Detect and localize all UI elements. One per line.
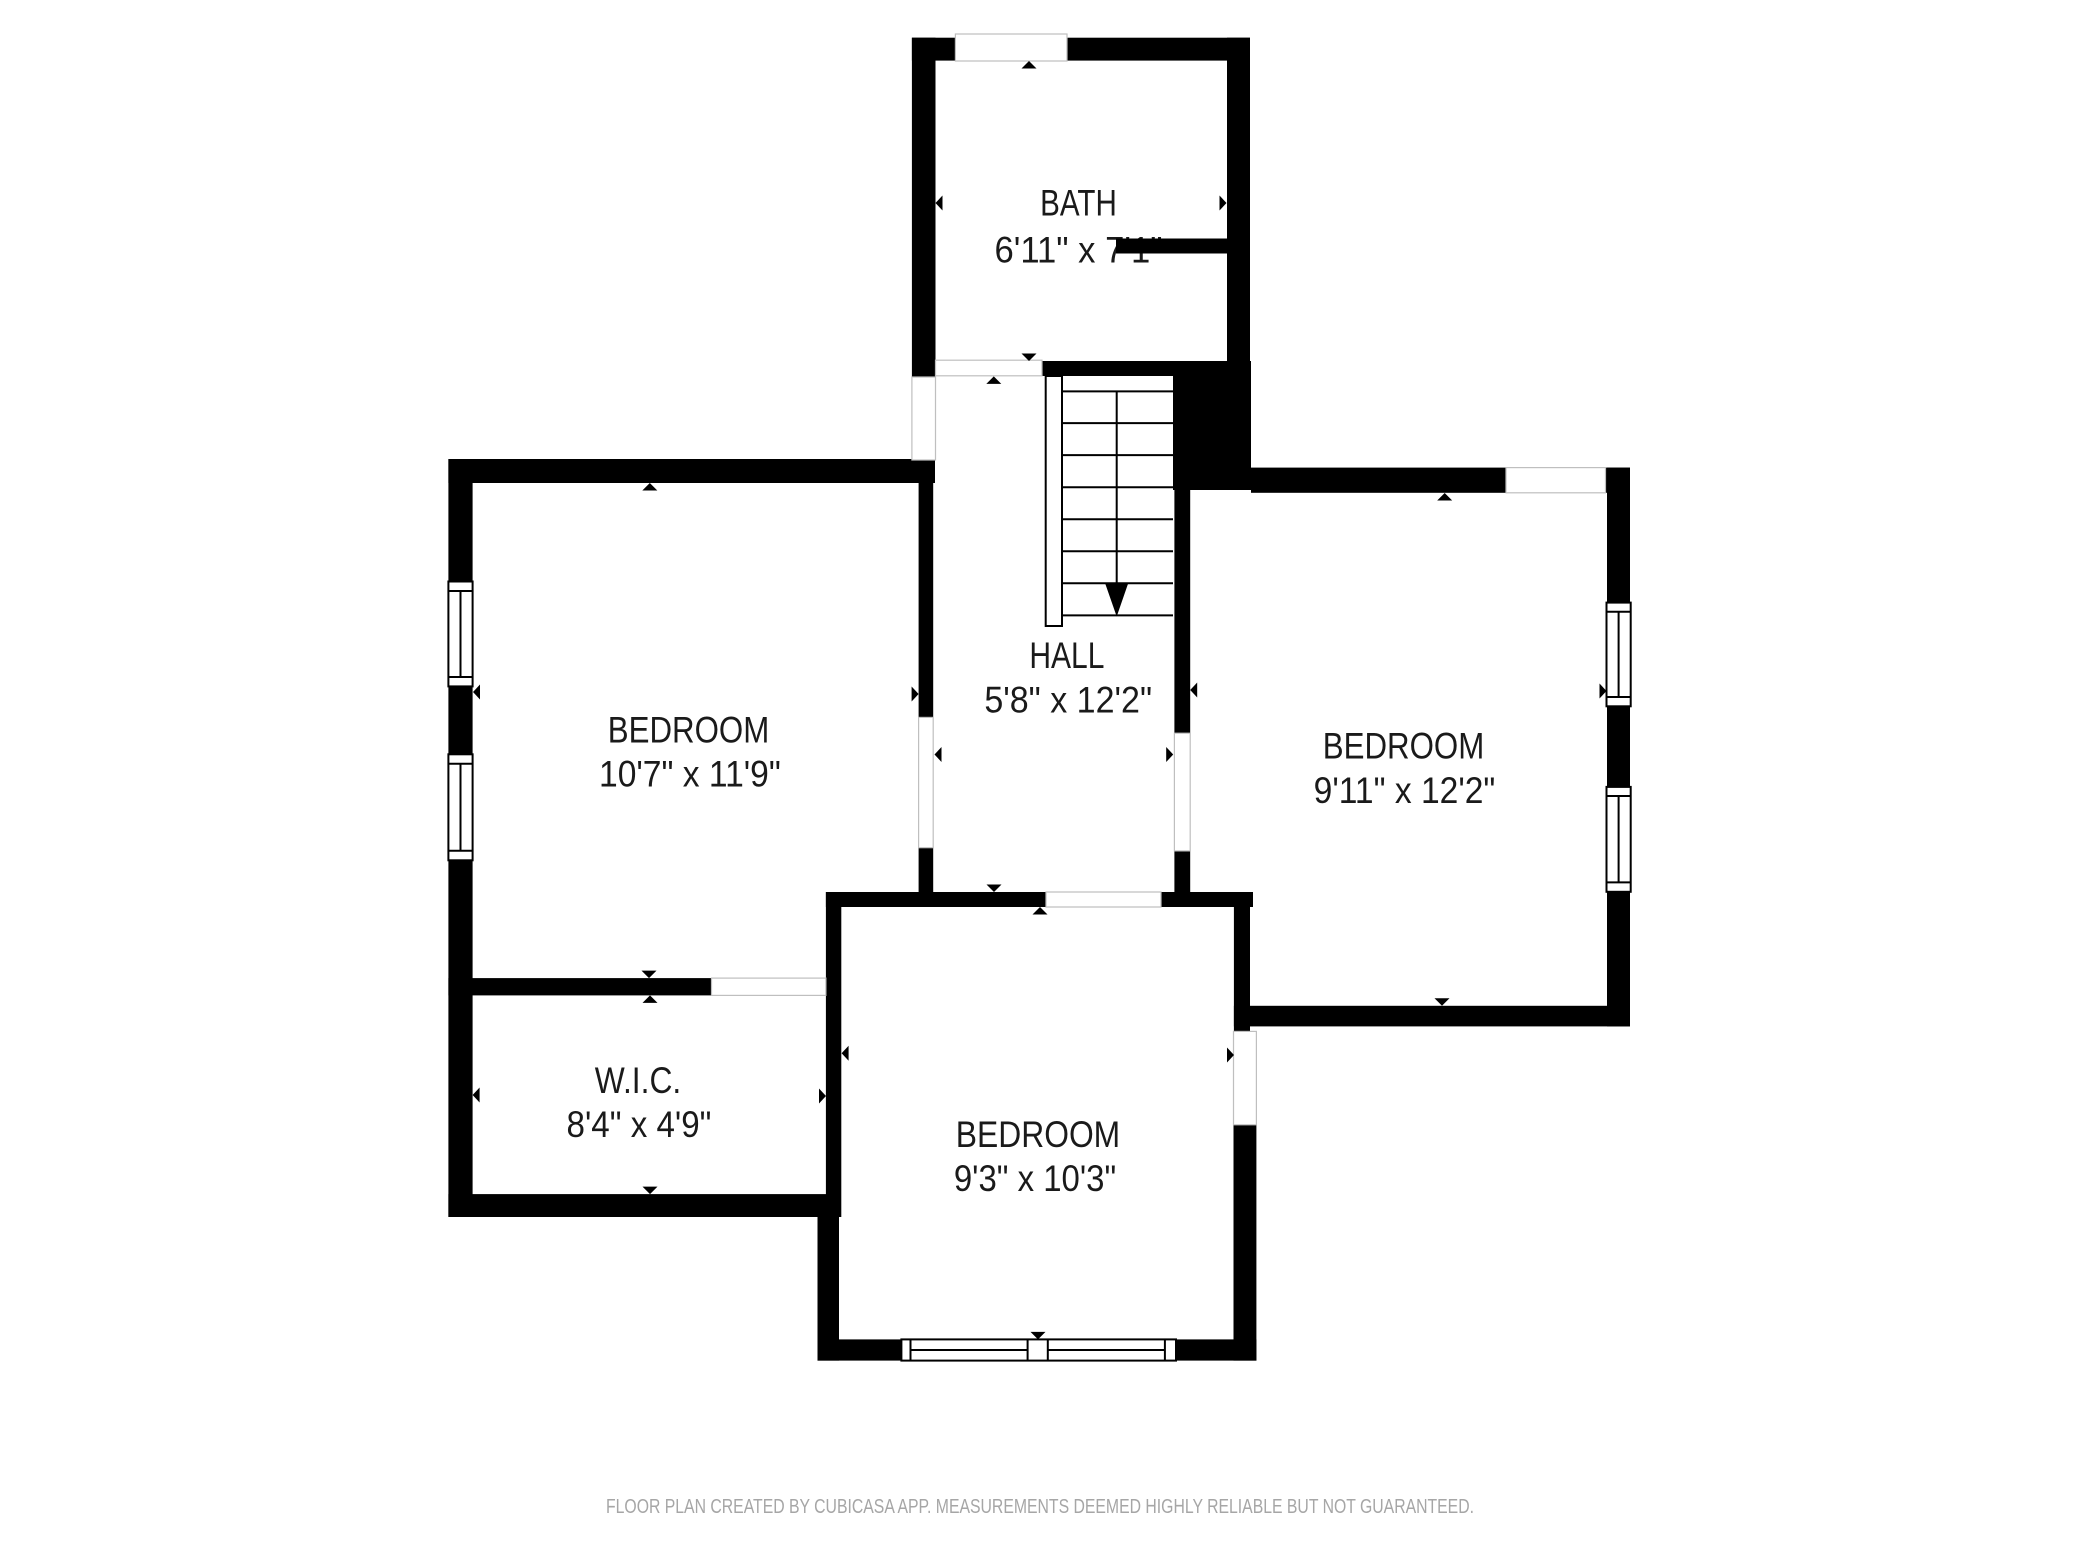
svg-text:FLOOR PLAN CREATED BY CUBICASA: FLOOR PLAN CREATED BY CUBICASA APP. MEAS… (606, 1495, 1474, 1518)
svg-text:BEDROOM: BEDROOM (608, 710, 770, 751)
svg-text:9'11" x 12'2": 9'11" x 12'2" (1314, 770, 1496, 811)
svg-text:HALL: HALL (1029, 635, 1104, 676)
svg-text:10'7" x 11'9": 10'7" x 11'9" (599, 754, 781, 795)
svg-text:5'8" x 12'2": 5'8" x 12'2" (984, 680, 1152, 721)
svg-text:8'4" x 4'9": 8'4" x 4'9" (567, 1104, 712, 1145)
svg-text:BATH: BATH (1040, 182, 1117, 223)
svg-text:W.I.C.: W.I.C. (595, 1060, 682, 1101)
svg-text:BEDROOM: BEDROOM (956, 1114, 1120, 1155)
svg-text:BEDROOM: BEDROOM (1323, 726, 1485, 767)
svg-text:9'3" x 10'3": 9'3" x 10'3" (954, 1158, 1116, 1199)
